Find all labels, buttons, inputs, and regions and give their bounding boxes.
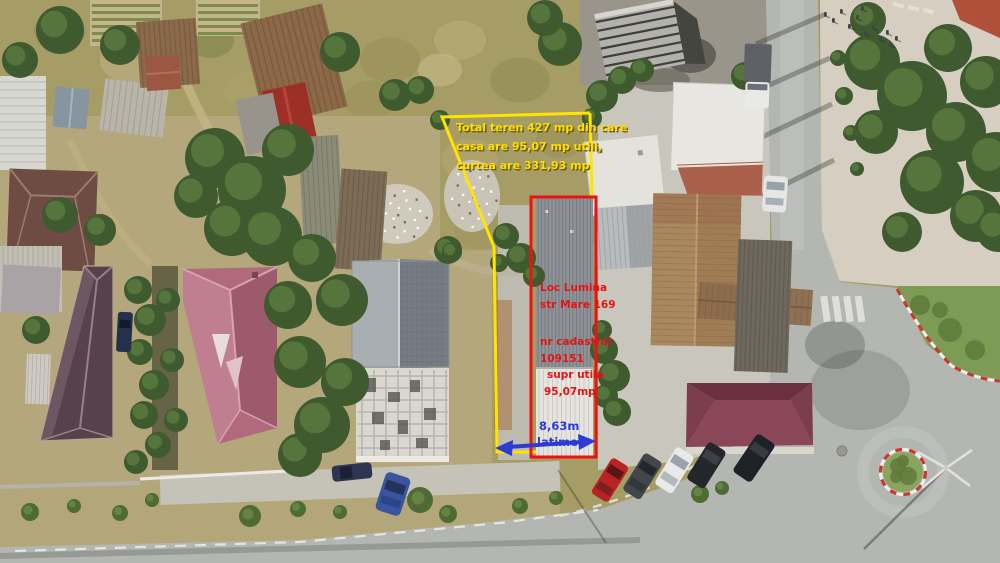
tree-highlight bbox=[104, 29, 126, 51]
grass-blob bbox=[890, 471, 902, 483]
white-car-on-road bbox=[762, 175, 788, 213]
rubble-speck bbox=[403, 230, 405, 232]
tree-highlight bbox=[409, 79, 424, 94]
person bbox=[889, 42, 892, 47]
bush-highlight bbox=[292, 503, 300, 511]
scrub-patch bbox=[490, 58, 550, 103]
tree-highlight bbox=[929, 29, 955, 55]
grass-blob bbox=[910, 295, 930, 315]
rubble-speck bbox=[451, 198, 453, 200]
mauve-roof-piece bbox=[1, 265, 61, 316]
tree-highlight bbox=[158, 290, 171, 303]
rubble-speck bbox=[396, 236, 398, 238]
cadastral-label: nr cadastral bbox=[540, 336, 611, 348]
property-locality: Loc Lumina bbox=[540, 282, 607, 294]
tree-highlight bbox=[858, 114, 882, 138]
tree-highlight bbox=[324, 36, 346, 58]
person bbox=[879, 36, 882, 41]
bush-highlight bbox=[717, 483, 724, 490]
crop-row bbox=[92, 4, 160, 7]
rubble-speck bbox=[394, 194, 396, 196]
rubble-speck bbox=[404, 221, 406, 223]
tree-highlight bbox=[126, 452, 139, 465]
tree-highlight bbox=[46, 201, 66, 221]
crop-row bbox=[198, 18, 258, 21]
gray-panel-roof bbox=[594, 204, 662, 270]
rubble-speck bbox=[405, 199, 407, 201]
tree-highlight bbox=[6, 46, 26, 66]
rubble-speck bbox=[409, 208, 411, 210]
open-room bbox=[398, 420, 408, 434]
grass-blob bbox=[932, 302, 948, 318]
crop-row bbox=[198, 11, 258, 14]
person bbox=[895, 36, 898, 41]
maroon-hip-roof-building bbox=[686, 383, 814, 454]
bush-highlight bbox=[442, 508, 451, 517]
rubble-speck bbox=[458, 204, 460, 206]
asphalt-patch bbox=[805, 321, 865, 369]
tree-highlight bbox=[142, 373, 159, 390]
aerial-photo-canvas: Total teren 427 mp din care casa are 95,… bbox=[0, 0, 1000, 563]
white-ridged-roof-bit bbox=[25, 354, 51, 405]
tree-highlight bbox=[162, 350, 175, 363]
tree-highlight bbox=[632, 60, 645, 73]
note-line-3: curtea are 331,93 mp bbox=[456, 159, 590, 172]
rubble-speck bbox=[393, 226, 395, 228]
rubble-speck bbox=[482, 188, 484, 190]
rubble-speck bbox=[473, 186, 475, 188]
tree-highlight bbox=[321, 279, 350, 308]
dark-blue-car bbox=[116, 312, 133, 353]
tree-highlight bbox=[837, 89, 847, 99]
rubble-speck bbox=[486, 202, 488, 204]
rubble-speck bbox=[495, 200, 497, 202]
rubble-speck bbox=[398, 207, 400, 209]
rubble-speck bbox=[414, 219, 416, 221]
gray-metal-roof-house bbox=[352, 259, 449, 369]
tree-highlight bbox=[225, 163, 262, 200]
tree-highlight bbox=[509, 246, 526, 263]
tree-highlight bbox=[148, 435, 162, 449]
tree-highlight bbox=[279, 341, 308, 370]
rubble-speck bbox=[416, 198, 418, 200]
rubble-speck bbox=[468, 201, 470, 203]
bush-highlight bbox=[412, 492, 425, 505]
white-long-building bbox=[0, 76, 46, 170]
bush-highlight bbox=[114, 507, 122, 515]
open-room bbox=[410, 380, 420, 392]
person bbox=[864, 31, 867, 36]
rubble-speck bbox=[479, 176, 481, 178]
person bbox=[872, 25, 875, 30]
scrub-patch bbox=[360, 38, 420, 83]
tree-highlight bbox=[130, 342, 144, 356]
tree-highlight bbox=[87, 217, 105, 235]
rubble-speck bbox=[487, 175, 489, 177]
grass-blob bbox=[938, 318, 962, 342]
tree-highlight bbox=[293, 239, 319, 265]
open-room bbox=[380, 440, 390, 450]
bush-highlight bbox=[147, 495, 154, 502]
tree-highlight bbox=[850, 40, 881, 71]
open-room bbox=[416, 438, 428, 448]
tree-highlight bbox=[178, 178, 202, 202]
person bbox=[840, 9, 843, 14]
rubble-speck bbox=[457, 184, 459, 186]
person bbox=[832, 18, 835, 23]
bush-highlight bbox=[69, 501, 76, 508]
truck bbox=[743, 44, 772, 109]
tree-highlight bbox=[326, 363, 352, 389]
note-line-2: casa are 95,07 mp utili, bbox=[456, 140, 602, 153]
usable-area-value: 95,07mp bbox=[544, 386, 596, 398]
width-unit: latime bbox=[537, 435, 578, 449]
bush-highlight bbox=[243, 509, 254, 520]
rubble-speck bbox=[490, 190, 492, 192]
tree-highlight bbox=[851, 163, 859, 171]
tree-highlight bbox=[25, 319, 40, 334]
grass-blob bbox=[965, 340, 985, 360]
open-room bbox=[372, 412, 384, 424]
tree-highlight bbox=[845, 127, 854, 136]
cadastral-number: 109151 bbox=[540, 353, 584, 365]
person bbox=[861, 6, 864, 11]
tree-highlight bbox=[531, 4, 551, 24]
tree-highlight bbox=[444, 244, 455, 255]
tree-highlight bbox=[210, 206, 241, 237]
tree-highlight bbox=[248, 212, 281, 245]
bush-highlight bbox=[24, 506, 33, 515]
person bbox=[856, 15, 859, 20]
tree-highlight bbox=[496, 226, 510, 240]
tan-tile-roof-building bbox=[651, 193, 742, 347]
blue-gray-shed bbox=[52, 87, 89, 130]
tree-highlight bbox=[41, 11, 67, 37]
rubble-speck bbox=[413, 235, 415, 237]
rubble-speck bbox=[462, 194, 464, 196]
usable-area-label: supr utila bbox=[547, 369, 604, 381]
tree-highlight bbox=[606, 401, 621, 416]
width-value: 8,63m bbox=[539, 419, 579, 433]
manhole bbox=[837, 446, 847, 456]
open-room bbox=[388, 392, 400, 402]
rubble-speck bbox=[471, 226, 473, 228]
rubble-speck bbox=[416, 227, 418, 229]
bush-highlight bbox=[551, 493, 558, 500]
rubble-speck bbox=[426, 217, 428, 219]
dark-roof-building bbox=[734, 239, 793, 373]
tree-highlight bbox=[133, 404, 148, 419]
tree-highlight bbox=[932, 108, 965, 141]
rubble-speck bbox=[419, 210, 421, 212]
person bbox=[886, 30, 889, 35]
tree-highlight bbox=[137, 307, 155, 325]
tree-highlight bbox=[166, 410, 179, 423]
tree-highlight bbox=[382, 82, 400, 100]
open-room bbox=[424, 408, 436, 420]
rubble-speck bbox=[392, 217, 394, 219]
tree-highlight bbox=[906, 156, 941, 191]
brown-gray-roof bbox=[335, 169, 388, 272]
aerial-photo: Total teren 427 mp din care casa are 95,… bbox=[0, 0, 1000, 563]
rubble-speck bbox=[457, 173, 459, 175]
tree-highlight bbox=[611, 69, 626, 84]
rubble-speck bbox=[488, 213, 490, 215]
person bbox=[848, 24, 851, 29]
bush-highlight bbox=[694, 488, 703, 497]
rubble-speck bbox=[477, 218, 479, 220]
rubble-speck bbox=[403, 190, 405, 192]
tree-highlight bbox=[267, 129, 296, 158]
note-line-1: Total teren 427 mp din care bbox=[456, 121, 627, 134]
tree-highlight bbox=[191, 134, 224, 167]
person bbox=[824, 12, 827, 17]
tree-highlight bbox=[965, 61, 994, 90]
rubble-speck bbox=[397, 214, 399, 216]
tree-highlight bbox=[589, 83, 607, 101]
tree-highlight bbox=[300, 403, 331, 434]
bush-highlight bbox=[514, 500, 522, 508]
property-street: str Mare 169 bbox=[540, 299, 616, 311]
tree-highlight bbox=[269, 286, 295, 312]
crop-row bbox=[92, 11, 160, 14]
rubble-speck bbox=[384, 230, 386, 232]
rubble-speck bbox=[389, 202, 391, 204]
rubble-speck bbox=[385, 212, 387, 214]
crop-row bbox=[198, 4, 258, 7]
bush-highlight bbox=[335, 507, 342, 514]
crop-row bbox=[92, 18, 160, 21]
tree-highlight bbox=[832, 52, 841, 61]
grass-blob bbox=[897, 455, 909, 467]
lamp-pole-top bbox=[943, 465, 948, 470]
tree-highlight bbox=[886, 216, 908, 238]
tree-highlight bbox=[596, 386, 609, 399]
red-tile-shed bbox=[145, 55, 181, 91]
rubble-speck bbox=[461, 217, 463, 219]
tree-highlight bbox=[127, 279, 142, 294]
construction-walls bbox=[356, 368, 449, 462]
rubble-speck bbox=[469, 212, 471, 214]
tree-highlight bbox=[884, 68, 923, 107]
